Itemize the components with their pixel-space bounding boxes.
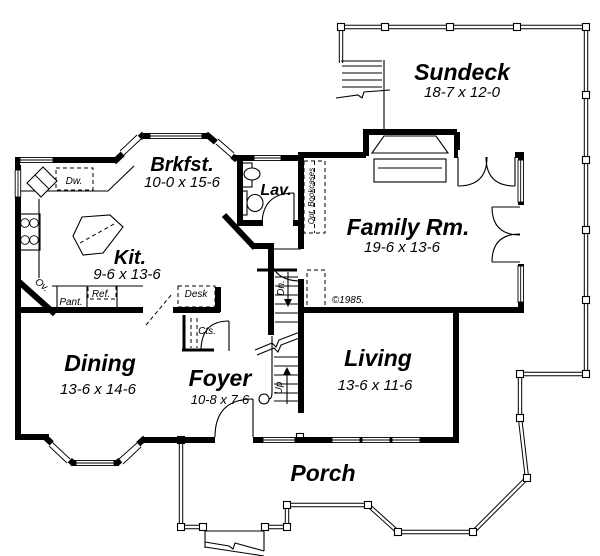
label-closets: Cts. [198,326,216,337]
floor-plan-page: Sundeck 18-7 x 12-0 Brkfst. 10-0 x 15-6 … [0,0,600,556]
label-copyright: ©1985. [332,295,364,306]
family-french-doors [492,207,520,262]
lav-sink [244,168,260,180]
room-dims-foyer: 10-8 x 7-6 [191,392,250,407]
fireplace [372,136,448,182]
label-stairs-down: Dn. [276,280,287,296]
closet-rod [191,318,197,348]
room-label-brkfst: Brkfst. [150,154,213,176]
sundeck-stairs [336,60,390,131]
room-label-living: Living [344,345,412,371]
room-label-porch: Porch [290,460,355,486]
room-dims-dining: 13-6 x 14-6 [60,381,137,398]
understair-closet [307,270,325,308]
label-pantry: Pant. [59,297,82,308]
label-dishwasher: Dw. [66,176,83,187]
sundeck-french-doors [458,157,515,186]
room-label-sundeck: Sundeck [414,59,511,85]
stair-break-line [255,332,302,355]
room-dims-brkfst: 10-0 x 15-6 [144,174,221,191]
room-label-family: Family Rm. [347,214,470,240]
newel-post [259,394,269,404]
room-dims-family: 19-6 x 13-6 [364,239,441,256]
room-dims-sundeck: 18-7 x 12-0 [424,84,501,101]
room-label-dining: Dining [64,350,136,376]
room-labels: Sundeck 18-7 x 12-0 Brkfst. 10-0 x 15-6 … [60,59,511,486]
label-refrigerator: Ref. [92,289,110,300]
room-dims-kitchen: 9-6 x 13-6 [93,266,161,283]
porch-steps [205,529,264,556]
room-label-foyer: Foyer [189,365,253,391]
floor-plan-canvas: Sundeck 18-7 x 12-0 Brkfst. 10-0 x 15-6 … [0,0,600,556]
label-stairs-up: Up [274,381,285,394]
label-desk: Desk [185,289,209,300]
room-label-lav: Lav. [260,182,291,199]
deck-porch-railing [178,24,590,556]
room-dims-living: 13-6 x 11-6 [338,377,413,394]
stairs [255,270,325,404]
label-bookcases: Opt. Bookcases [307,168,316,224]
label-oven: Ov. [32,276,50,294]
kitchen-dining-opening [146,294,172,325]
